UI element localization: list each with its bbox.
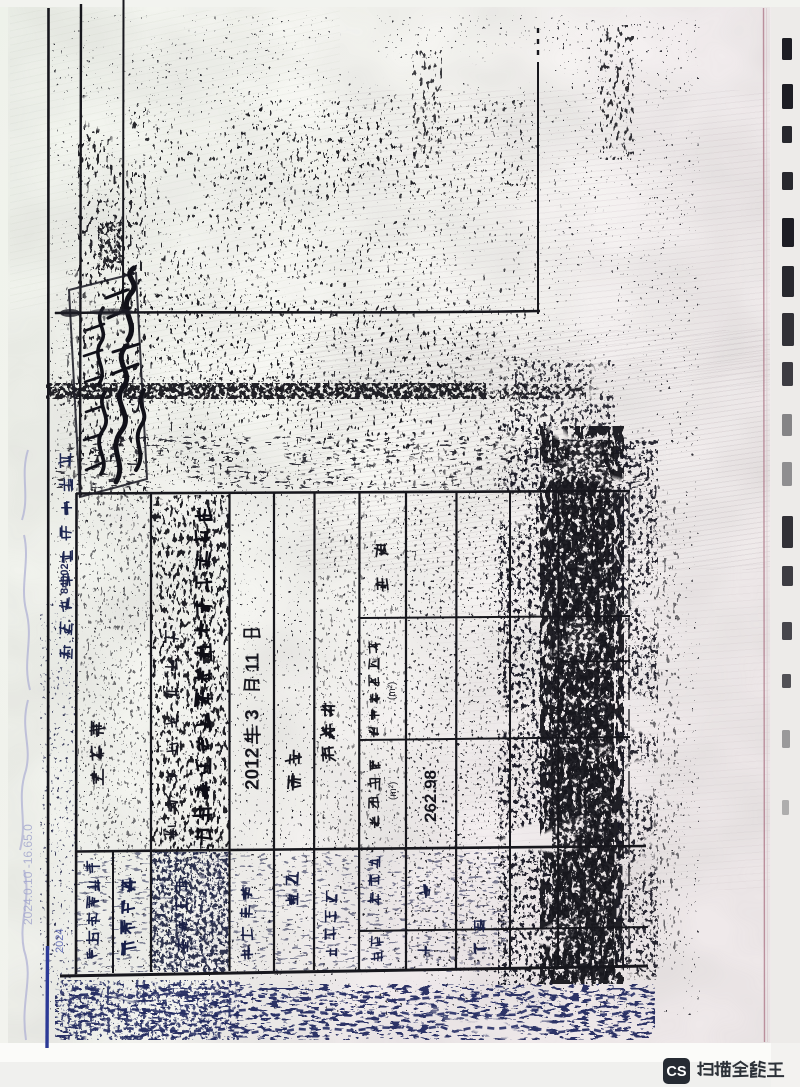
svg-text:262.98: 262.98: [421, 770, 440, 822]
svg-text:CS: CS: [666, 1064, 686, 1080]
svg-text:(m²): (m²): [388, 782, 399, 800]
svg-text:2012: 2012: [243, 748, 264, 790]
svg-text:2024.0.10 -16.65.0: 2024.0.10 -16.65.0: [21, 824, 35, 925]
svg-text:84002: 84002: [59, 563, 71, 594]
svg-text:2024: 2024: [54, 929, 66, 953]
svg-text:11: 11: [243, 653, 263, 672]
svg-text:3: 3: [243, 709, 264, 720]
svg-text:(m²): (m²): [387, 682, 398, 700]
